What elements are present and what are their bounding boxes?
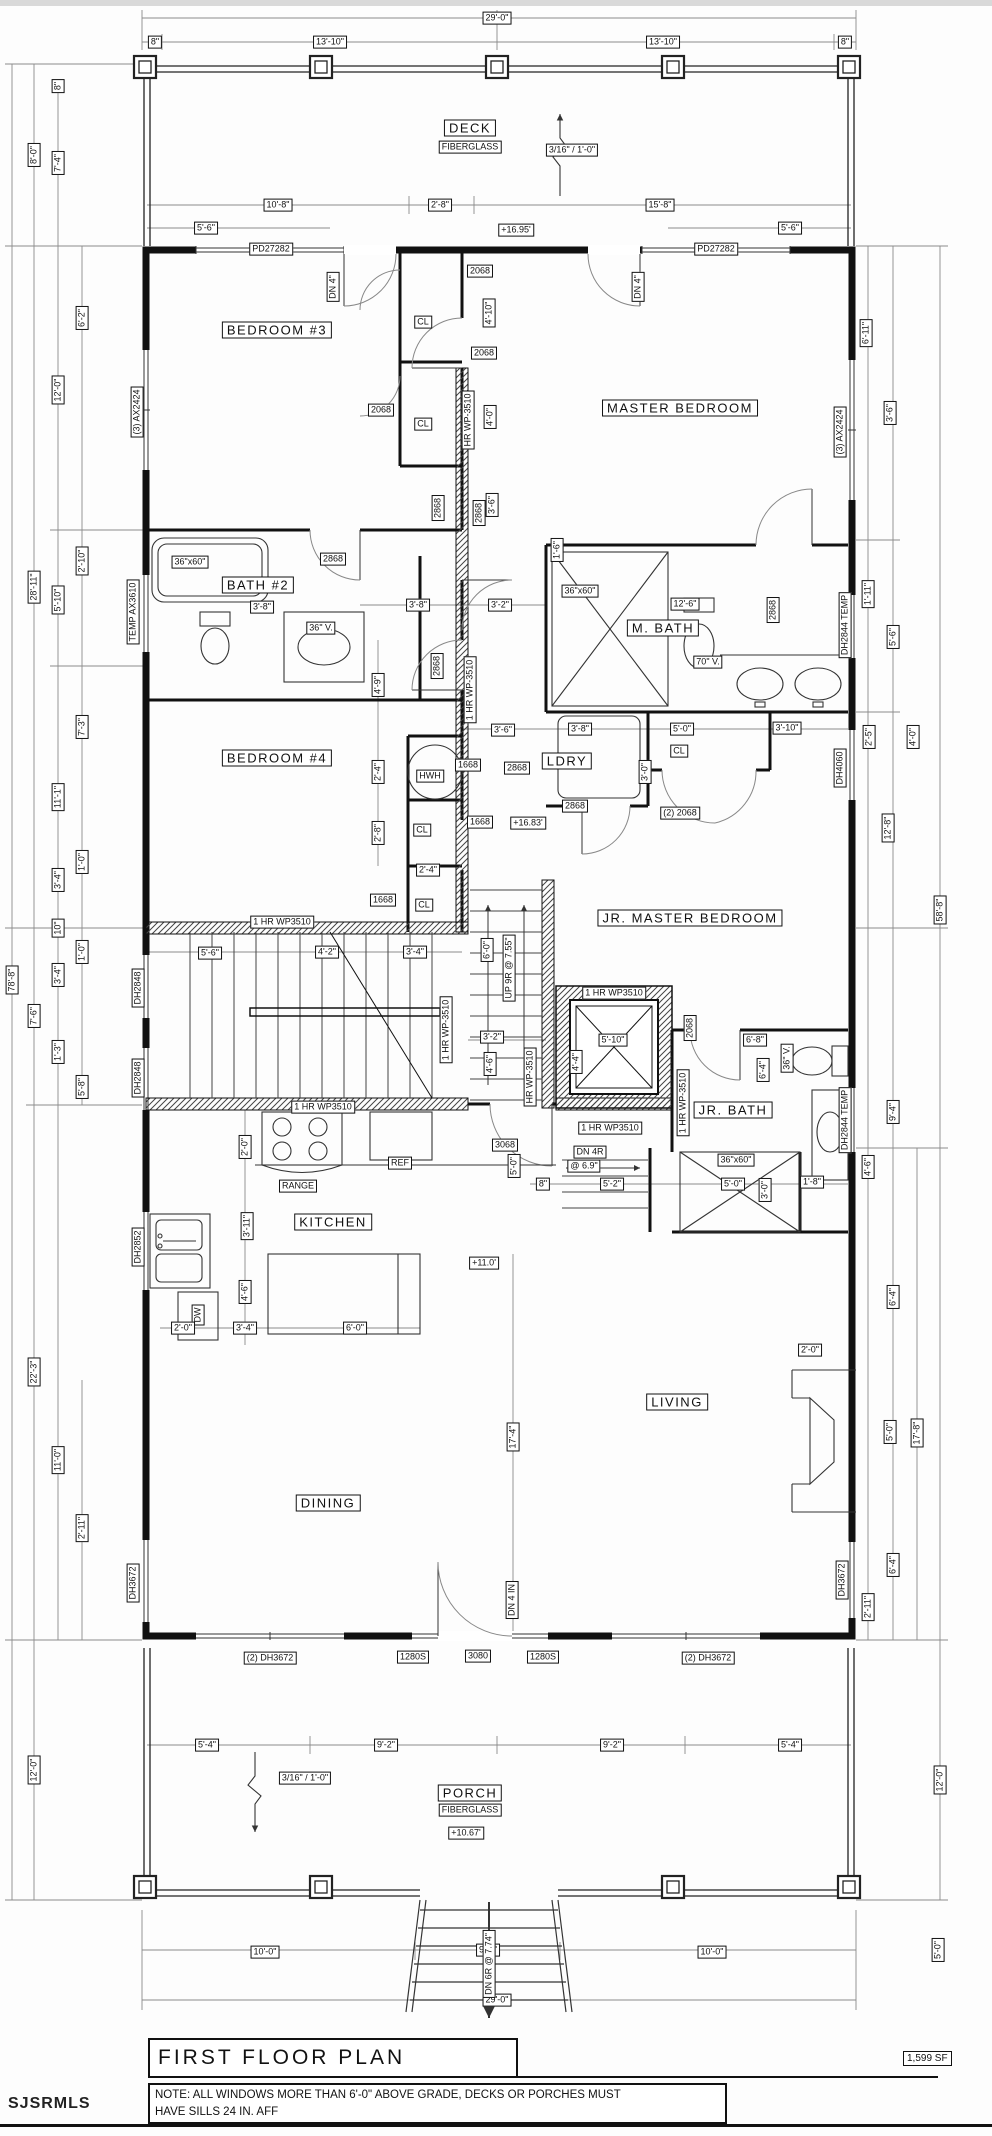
dim-label: (2) DH3672 (682, 1652, 735, 1665)
dim-label: 2868 (432, 495, 445, 521)
elevator-shaft (556, 986, 672, 1108)
dim-label: 3068 (492, 1139, 518, 1152)
note-line-1: NOTE: ALL WINDOWS MORE THAN 6'-0" ABOVE … (155, 2087, 720, 2104)
dim-label: 2'-0" (239, 1135, 252, 1159)
dim-label: 4'-2" (315, 946, 339, 959)
dim-label: DN 4R (573, 1146, 606, 1159)
dim-label: 1 HR WP3510 (250, 916, 314, 929)
dim-label: 4'-6" (484, 1052, 497, 1076)
dim-label: 4'-6" (239, 1280, 252, 1304)
dim-label: 2'-8" (428, 199, 452, 212)
general-note: NOTE: ALL WINDOWS MORE THAN 6'-0" ABOVE … (148, 2083, 727, 2124)
dim-label: 3'-8" (568, 723, 592, 736)
floor-plan-sheet: 29'-0"8"13'-10"13'-10"8"3/16" / 1'-0"FIB… (0, 0, 992, 2136)
dim-label: 5'-0" (884, 1420, 897, 1444)
room-label: LDRY (542, 753, 592, 770)
dim-label: 5'-0" (670, 723, 694, 736)
dim-label: 8" (536, 1178, 550, 1191)
dim-label: 1 HR WP-3510 (677, 1070, 690, 1137)
dim-label: 3'-6" (884, 401, 897, 425)
dim-label: (3) AX2424 (834, 406, 847, 457)
dim-label: 1'-8" (800, 1176, 824, 1189)
dim-label: 3'-6" (491, 724, 515, 737)
dim-label: 7'-3" (76, 715, 89, 739)
dim-label: DN 4" (632, 272, 645, 302)
dim-label: 2068 (467, 265, 493, 278)
dim-label: DN 6R @ 7.74" (483, 1930, 496, 1998)
dim-label: 5'-6" (194, 222, 218, 235)
porch-structure (134, 1648, 860, 1898)
dim-label: 4'-9" (372, 673, 385, 697)
area-badge: 1,599 SF (903, 2051, 952, 2066)
dim-label: @ 6.9" (567, 1160, 600, 1173)
dim-label: 6'-4" (887, 1285, 900, 1309)
dim-label: 2'-8" (372, 821, 385, 845)
dim-label: 10" (52, 918, 65, 937)
dim-label: 10'-0" (251, 1946, 280, 1959)
dim-label: 1 HR WP3510 (582, 987, 646, 1000)
dim-label: REF (388, 1157, 412, 1170)
dim-label: 4'-6" (862, 1155, 875, 1179)
dim-label: 2068 (684, 1015, 697, 1041)
dim-label: 3'-8" (250, 601, 274, 614)
dim-label: 3'-4" (52, 963, 65, 987)
dim-label: (3) AX2424 (131, 386, 144, 437)
dim-label: 11'-0" (52, 1446, 65, 1474)
dim-label: 5'-4" (195, 1739, 219, 1752)
sheet-border-line (0, 2124, 992, 2127)
dim-label: 4'-10" (483, 299, 496, 328)
dim-label: 1668 (467, 816, 493, 829)
dim-label: 6'-0" (481, 938, 494, 962)
dim-label: +16.83' (510, 817, 546, 830)
dim-label: 6'-8" (743, 1034, 767, 1047)
dim-label: 2868 (431, 653, 444, 679)
dim-label: CL (670, 745, 688, 758)
dim-label: 2868 (473, 500, 486, 526)
dim-label: TEMP AX3610 (127, 580, 140, 645)
exterior-walls (146, 250, 852, 1636)
dim-label: 36"x60" (172, 556, 209, 569)
dim-label: 2868 (504, 762, 530, 775)
note-line-2: HAVE SILLS 24 IN. AFF (155, 2104, 720, 2121)
room-label: LIVING (646, 1394, 708, 1411)
dim-label: 8'-0" (28, 143, 41, 167)
dim-label: 17'-4" (507, 1423, 520, 1452)
dim-label: 1280S (397, 1651, 429, 1664)
dim-label: 6'-4" (887, 1553, 900, 1577)
mls-watermark: SJSRMLS (8, 2095, 91, 2113)
dim-label: 3'-4" (233, 1322, 257, 1335)
dim-label: 2868 (767, 597, 780, 623)
dim-label: 5'-0" (932, 1938, 945, 1962)
dim-label: DH3672 (127, 1563, 140, 1602)
dim-label: 36"x60" (718, 1154, 755, 1167)
dim-label: 5'-0" (508, 1154, 521, 1178)
room-label: JR. BATH (694, 1102, 773, 1119)
room-label: DINING (296, 1495, 361, 1512)
dim-label: DH2844 TEMP (839, 592, 852, 658)
dim-label: +16.95' (498, 224, 534, 237)
room-label: BEDROOM #3 (222, 322, 332, 339)
dim-label: 8" (148, 36, 162, 49)
room-label: JR. MASTER BEDROOM (597, 910, 782, 927)
dim-label: 2'-5" (863, 725, 876, 749)
dim-label: 5'-10" (52, 586, 65, 615)
dim-label: 7'-6" (28, 1004, 41, 1028)
dim-label: 3'-6" (486, 493, 499, 517)
dim-label: 5'-6" (778, 222, 802, 235)
dim-label: 5'-0" (721, 1178, 745, 1191)
dim-label: HWH (416, 770, 444, 783)
dim-label: 1 HR WP3510 (578, 1122, 642, 1135)
dim-label: 12'-0" (52, 376, 65, 405)
dim-label: 4'-4" (570, 1050, 583, 1074)
dim-label: 1'-11" (862, 580, 875, 608)
dim-label: 3/16" / 1'-0" (546, 144, 598, 157)
dim-label: CL (414, 316, 432, 329)
dim-label: 2'-4" (372, 760, 385, 784)
dim-label: 8" (838, 36, 852, 49)
dim-label: 2'-11" (862, 1593, 875, 1621)
dim-label: 3'-4" (403, 946, 427, 959)
dim-label: 3'-4" (52, 868, 65, 892)
dim-label: 10'-0" (698, 1946, 727, 1959)
dim-label: 3'-2" (480, 1031, 504, 1044)
interior-walls (146, 250, 848, 1232)
dim-label: 2868 (320, 553, 346, 566)
dim-label: 1'-0" (76, 850, 89, 874)
room-label: M. BATH (627, 620, 699, 637)
dim-label: 13'-10" (646, 36, 680, 49)
dim-label: (2) DH3672 (244, 1652, 297, 1665)
dim-label: 1668 (370, 894, 396, 907)
dim-label: DH2848 (132, 968, 145, 1007)
dim-label: RANGE (279, 1180, 317, 1193)
room-label: MASTER BEDROOM (602, 400, 758, 417)
dim-label: 2'-10" (76, 547, 89, 576)
dim-label: 2'-11" (76, 1514, 89, 1542)
dim-label: 3'-11" (241, 1212, 254, 1240)
dim-label: 11'-1" (52, 783, 65, 811)
dim-label: 36"x60" (562, 585, 599, 598)
dim-label: 1'-3" (52, 1040, 65, 1064)
dim-label: 29'-0" (483, 12, 512, 25)
dim-label: HR WP-3510 (462, 390, 475, 449)
room-label: PORCH (438, 1785, 502, 1802)
dim-label: 4'-0" (484, 405, 497, 429)
dim-label: 78'-8" (6, 966, 19, 995)
dim-label: 12'-0" (934, 1766, 947, 1795)
dim-label: FIBERGLASS (439, 1804, 502, 1817)
dim-label: 3'-10" (773, 722, 802, 735)
dim-label: 12'-6" (671, 598, 700, 611)
dim-label: 2'-0" (171, 1322, 195, 1335)
dim-label: (2) 2068 (660, 807, 700, 820)
dim-label: 1 HR WP-3510 (464, 657, 477, 724)
room-label: BATH #2 (222, 577, 294, 594)
dim-label: 13'-10" (313, 36, 347, 49)
dim-label: CL (413, 824, 431, 837)
dim-label: 2868 (562, 800, 588, 813)
dim-label: DN 4 IN (506, 1581, 519, 1619)
windows (142, 245, 856, 1641)
dim-label: 1280S (527, 1651, 559, 1664)
dim-label: 1'-6" (551, 538, 564, 562)
dim-label: 5'-8" (76, 1075, 89, 1099)
dim-label: 3'-0" (759, 1178, 772, 1202)
dim-label: 9'-2" (374, 1739, 398, 1752)
room-label: KITCHEN (294, 1214, 372, 1231)
dim-label: 3'-2" (488, 599, 512, 612)
dim-label: 6'-0" (343, 1322, 367, 1335)
dim-label: DH4060 (834, 748, 847, 787)
dim-label: PD27282 (249, 243, 293, 256)
dim-label: CL (414, 418, 432, 431)
dim-label: DH3672 (836, 1560, 849, 1599)
dim-label: 12'-0" (28, 1756, 41, 1785)
dim-label: 28'-11" (28, 570, 41, 603)
dim-label: CL (415, 899, 433, 912)
dim-label: 3/16" / 1'-0" (279, 1772, 331, 1785)
dim-label: 6'-11" (860, 319, 873, 347)
doors (310, 254, 812, 1636)
dim-label: +11.0' (469, 1257, 499, 1270)
dim-label: +10.67' (448, 1827, 484, 1840)
dim-label: DH2844 TEMP (839, 1087, 852, 1153)
dim-label: 10'-8" (264, 199, 293, 212)
dim-label: 15'-8" (646, 199, 675, 212)
room-label: DECK (444, 120, 496, 137)
dim-label: 5'-10" (599, 1034, 628, 1047)
dim-label: 5'-6" (198, 947, 222, 960)
dim-label: 36" V. (306, 622, 335, 635)
dim-label: 5'-6" (887, 625, 900, 649)
dim-label: PD27282 (694, 243, 738, 256)
dim-label: 1 HR WP3510 (291, 1101, 355, 1114)
dim-label: 5'-2" (600, 1178, 624, 1191)
dim-label: 5'-4" (778, 1739, 802, 1752)
dim-label: 1'-0" (76, 940, 89, 964)
dim-label: 3080 (465, 1650, 491, 1663)
dim-label: 22'-3" (28, 1358, 41, 1387)
dim-label: FIBERGLASS (439, 141, 502, 154)
dim-label: 1 HR WP-3510 (440, 997, 453, 1064)
dim-label: 12'-8" (882, 814, 895, 843)
dim-label: DH2848 (132, 1058, 145, 1097)
dim-label: 2'-4" (416, 864, 440, 877)
dim-label: 1668 (455, 759, 481, 772)
dim-label: 2'-0" (798, 1344, 822, 1357)
title-underline (148, 2076, 938, 2078)
dim-label: 70" V. (693, 656, 722, 669)
dim-label: 6'-4" (757, 1058, 770, 1082)
room-label: BEDROOM #4 (222, 750, 332, 767)
dim-label: 3'-0" (639, 760, 652, 784)
dim-label: 7'-4" (52, 151, 65, 175)
dim-label: 17'-8" (911, 1419, 924, 1448)
dim-label: 2068 (368, 404, 394, 417)
dim-label: 36" V. (781, 1043, 794, 1072)
dim-label: 3'-8" (406, 599, 430, 612)
dim-label: DH2852 (132, 1227, 145, 1266)
dim-label: UP 9R @ 7.55" (503, 934, 516, 1001)
dim-label: 9'-2" (600, 1739, 624, 1752)
dim-label: HR WP-3510 (524, 1047, 537, 1106)
dim-label: 2068 (471, 347, 497, 360)
dim-label: DN 4" (327, 272, 340, 302)
dim-label: 9'-4" (887, 1100, 900, 1124)
dim-label: 6'-2" (76, 306, 89, 330)
dim-label: 58'-8" (934, 896, 947, 925)
dim-label: 8" (52, 79, 65, 93)
dim-label: 4'-0" (907, 725, 920, 749)
drawing-title: FIRST FLOOR PLAN (148, 2038, 518, 2078)
